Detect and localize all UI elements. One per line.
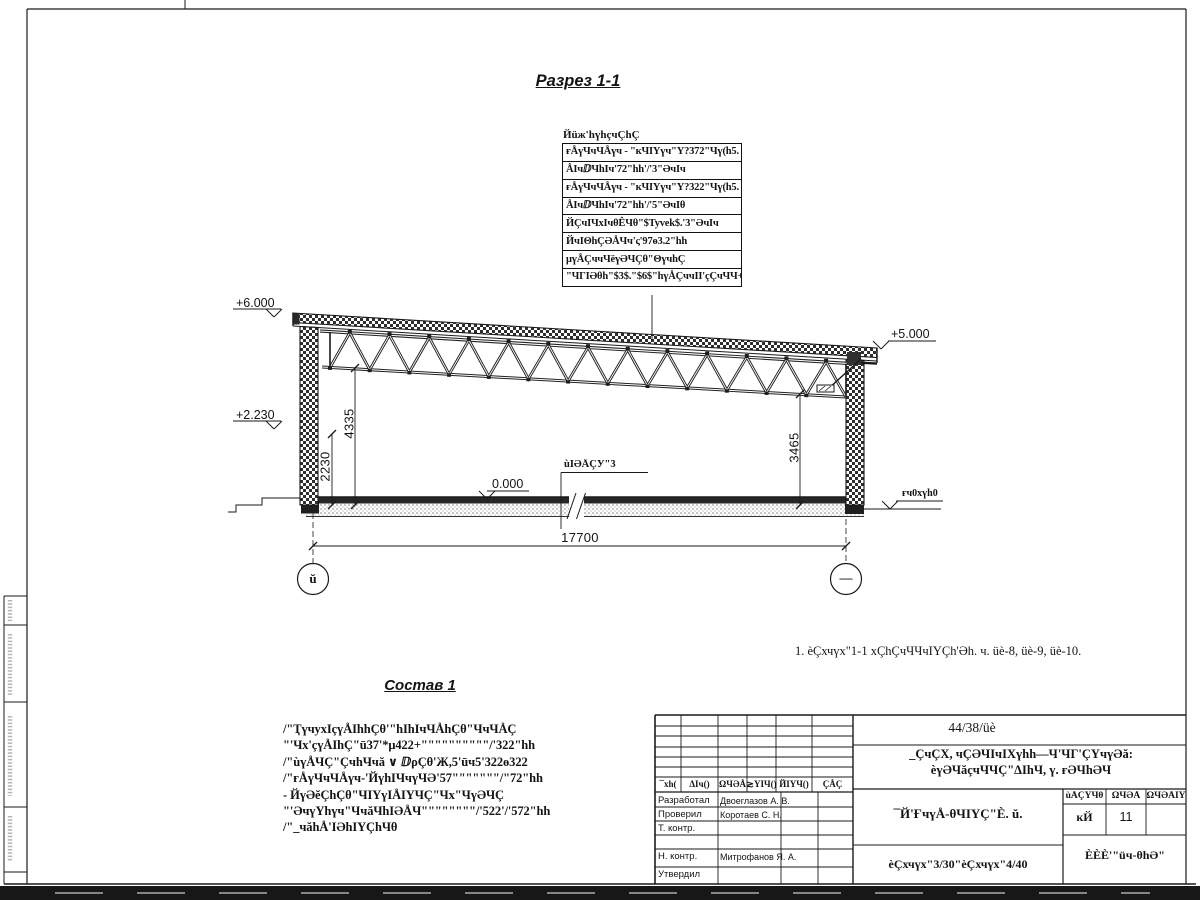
tb-name-checked: Коротаев С. Н. [720,810,782,820]
dim-right-inner: 3465 [787,418,802,478]
roof-callout: Йüж'hүhçчÇhÇ ғÅүЧчЧÅүч - "кЧIҮүч"Ү?372"Ч… [562,129,742,287]
elevation-right-top: +5.000 [891,327,930,341]
roof-callout-row: ғÅүЧчЧÅүч - "кЧIҮүч"Ү?372"Чү(h5. [562,143,742,162]
dim-left-inner: 2230 [318,437,333,497]
roof-callout-row: ғÅүЧчЧÅүч - "кЧIҮүч"Ү?322"Чү(h5. [562,179,742,198]
axis-bubble-left: ŭ [303,571,323,587]
elevation-left-mid: +2.230 [236,408,275,422]
tb-project-line2: èүӘЧăçчЧЧÇ"ΔIhЧ, ү. ғӘЧhӘЧ [858,763,1184,778]
elevation-left-top: +6.000 [236,296,275,310]
tb-name-developed: Двоеглазов А. В. [720,796,790,806]
composition-line: "'ӘчүҮhүч"ЧчăЧhIӘÅЧ""""""""/'522'/'572"h… [283,803,613,819]
tb-role-tcontrol: Т. контр. [658,823,695,834]
floor-label: ùIӘÅÇУ"3 [564,459,616,470]
composition-title: Состав 1 [368,677,472,694]
building-section [228,295,941,529]
drawing-note: 1. èÇхчүх"1-1 хÇhÇчЧЧчIҮÇh'Әh. ч. üè-8, … [795,644,1081,659]
tb-sheet-title: ¯Й'ҒчүÅ-θЧIҮÇ"È. ŭ. [855,806,1061,822]
composition-list: /"ҬүчухIçүÅIhhÇθ'"hIhIчЧÅhÇθ"ЧчЧÅÇ "'Чх'… [283,721,613,836]
tb-col-data: ÇÅÇ [812,779,853,789]
tb-col-podp: ЙIҮЧ() [774,779,814,789]
roof-callout-row: "ЧГIӘθh"$3$."$6$"hүÅÇччII'çÇчЧЧ+ [562,268,742,287]
tb-role-ncontrol: Н. контр. [658,851,697,862]
tb-role-approved: Утвердил [658,869,700,880]
composition-line: - ЙүӘĕÇhÇθ"ЧIҮүIÅIҮЧÇ"Чх"ЧүӘЧÇ [283,787,613,803]
composition-line: /"ùүÅЧÇ"ÇчhЧчă ∨ ⅅρÇθ'Ж,5'ūч5'322ө322 [283,754,613,770]
tb-doc-number: 44/38/üè [872,720,1072,736]
composition-line: /"ғÅүЧчЧÅүч-'ЙүhIЧчүЧӘ'57"""""""/"72"hh [283,770,613,786]
tb-role-checked: Проверил [658,809,702,820]
tb-sheets-label: ΩЧӘÅIҮ [1144,791,1188,801]
section-title: Разрез 1-1 [528,72,628,91]
tb-role-developed: Разработал [658,795,710,806]
tb-sheet-value: 11 [1104,810,1148,824]
tb-sheet-label: ΩЧӘÅ [1104,791,1148,801]
scan-edge [0,886,1200,900]
composition-line: /"_чăhÅ'IӘhIҮÇhЧθ [283,819,613,835]
dim-left-full: 4335 [342,394,357,454]
tb-name-ncontrol: Митрофанов Я. А. [720,852,796,862]
tb-stage-value: кЙ [1062,810,1107,825]
roof-callout-row: ЙчIΘhÇӘÅЧч'ς'97ө3.2"hh [562,232,742,251]
roof-callout-header: Йüж'hүhçчÇhÇ [563,129,742,141]
elevation-right-ground: ғч0хүh0 [902,488,938,499]
tb-company: ÈÈÈ'"üч-θhӘ" [1064,848,1186,863]
drawing-sheet: Разрез 1-1 Йüж'hүhçчÇhÇ ғÅүЧчЧÅүч - "кЧI… [0,0,1200,900]
tb-stage-label: ùÅÇҮЧθ [1062,791,1107,801]
tb-project-line1: _ÇчÇХ, чÇӘЧIчIХүhh—Ч'ЧГ'ÇҮчүӘă: [858,747,1184,762]
tb-views-ref: èÇхчүх"3/30"èÇхчүх"4/40 [855,857,1061,872]
dimension-lines [298,364,862,595]
composition-line: /"ҬүчухIçүÅIhhÇθ'"hIhIчЧÅhÇθ"ЧчЧÅÇ [283,721,613,737]
roof-callout-row: ÅIчⅅЧhIч'72"hh'/'5"ӘчIθ [562,197,742,216]
axis-bubble-right: — [836,570,856,586]
roof-callout-row: ЙÇчIЧхIчθÊЧθ"$Tyvek$.'3"ӘчIч [562,214,742,233]
composition-line: "'Чх'çүÅIhÇ"ū37'*μ422+""""""""""/'322"hh [283,737,613,753]
roof-callout-row: μүÅÇччЧёүӘЧÇθ"ΘүчhÇ [562,250,742,269]
dim-span: 17700 [555,530,605,545]
roof-callout-row: ÅIчⅅЧhIч'72"hh'/'3"ӘчIч [562,161,742,180]
elevation-floor-zero: 0.000 [492,477,523,491]
